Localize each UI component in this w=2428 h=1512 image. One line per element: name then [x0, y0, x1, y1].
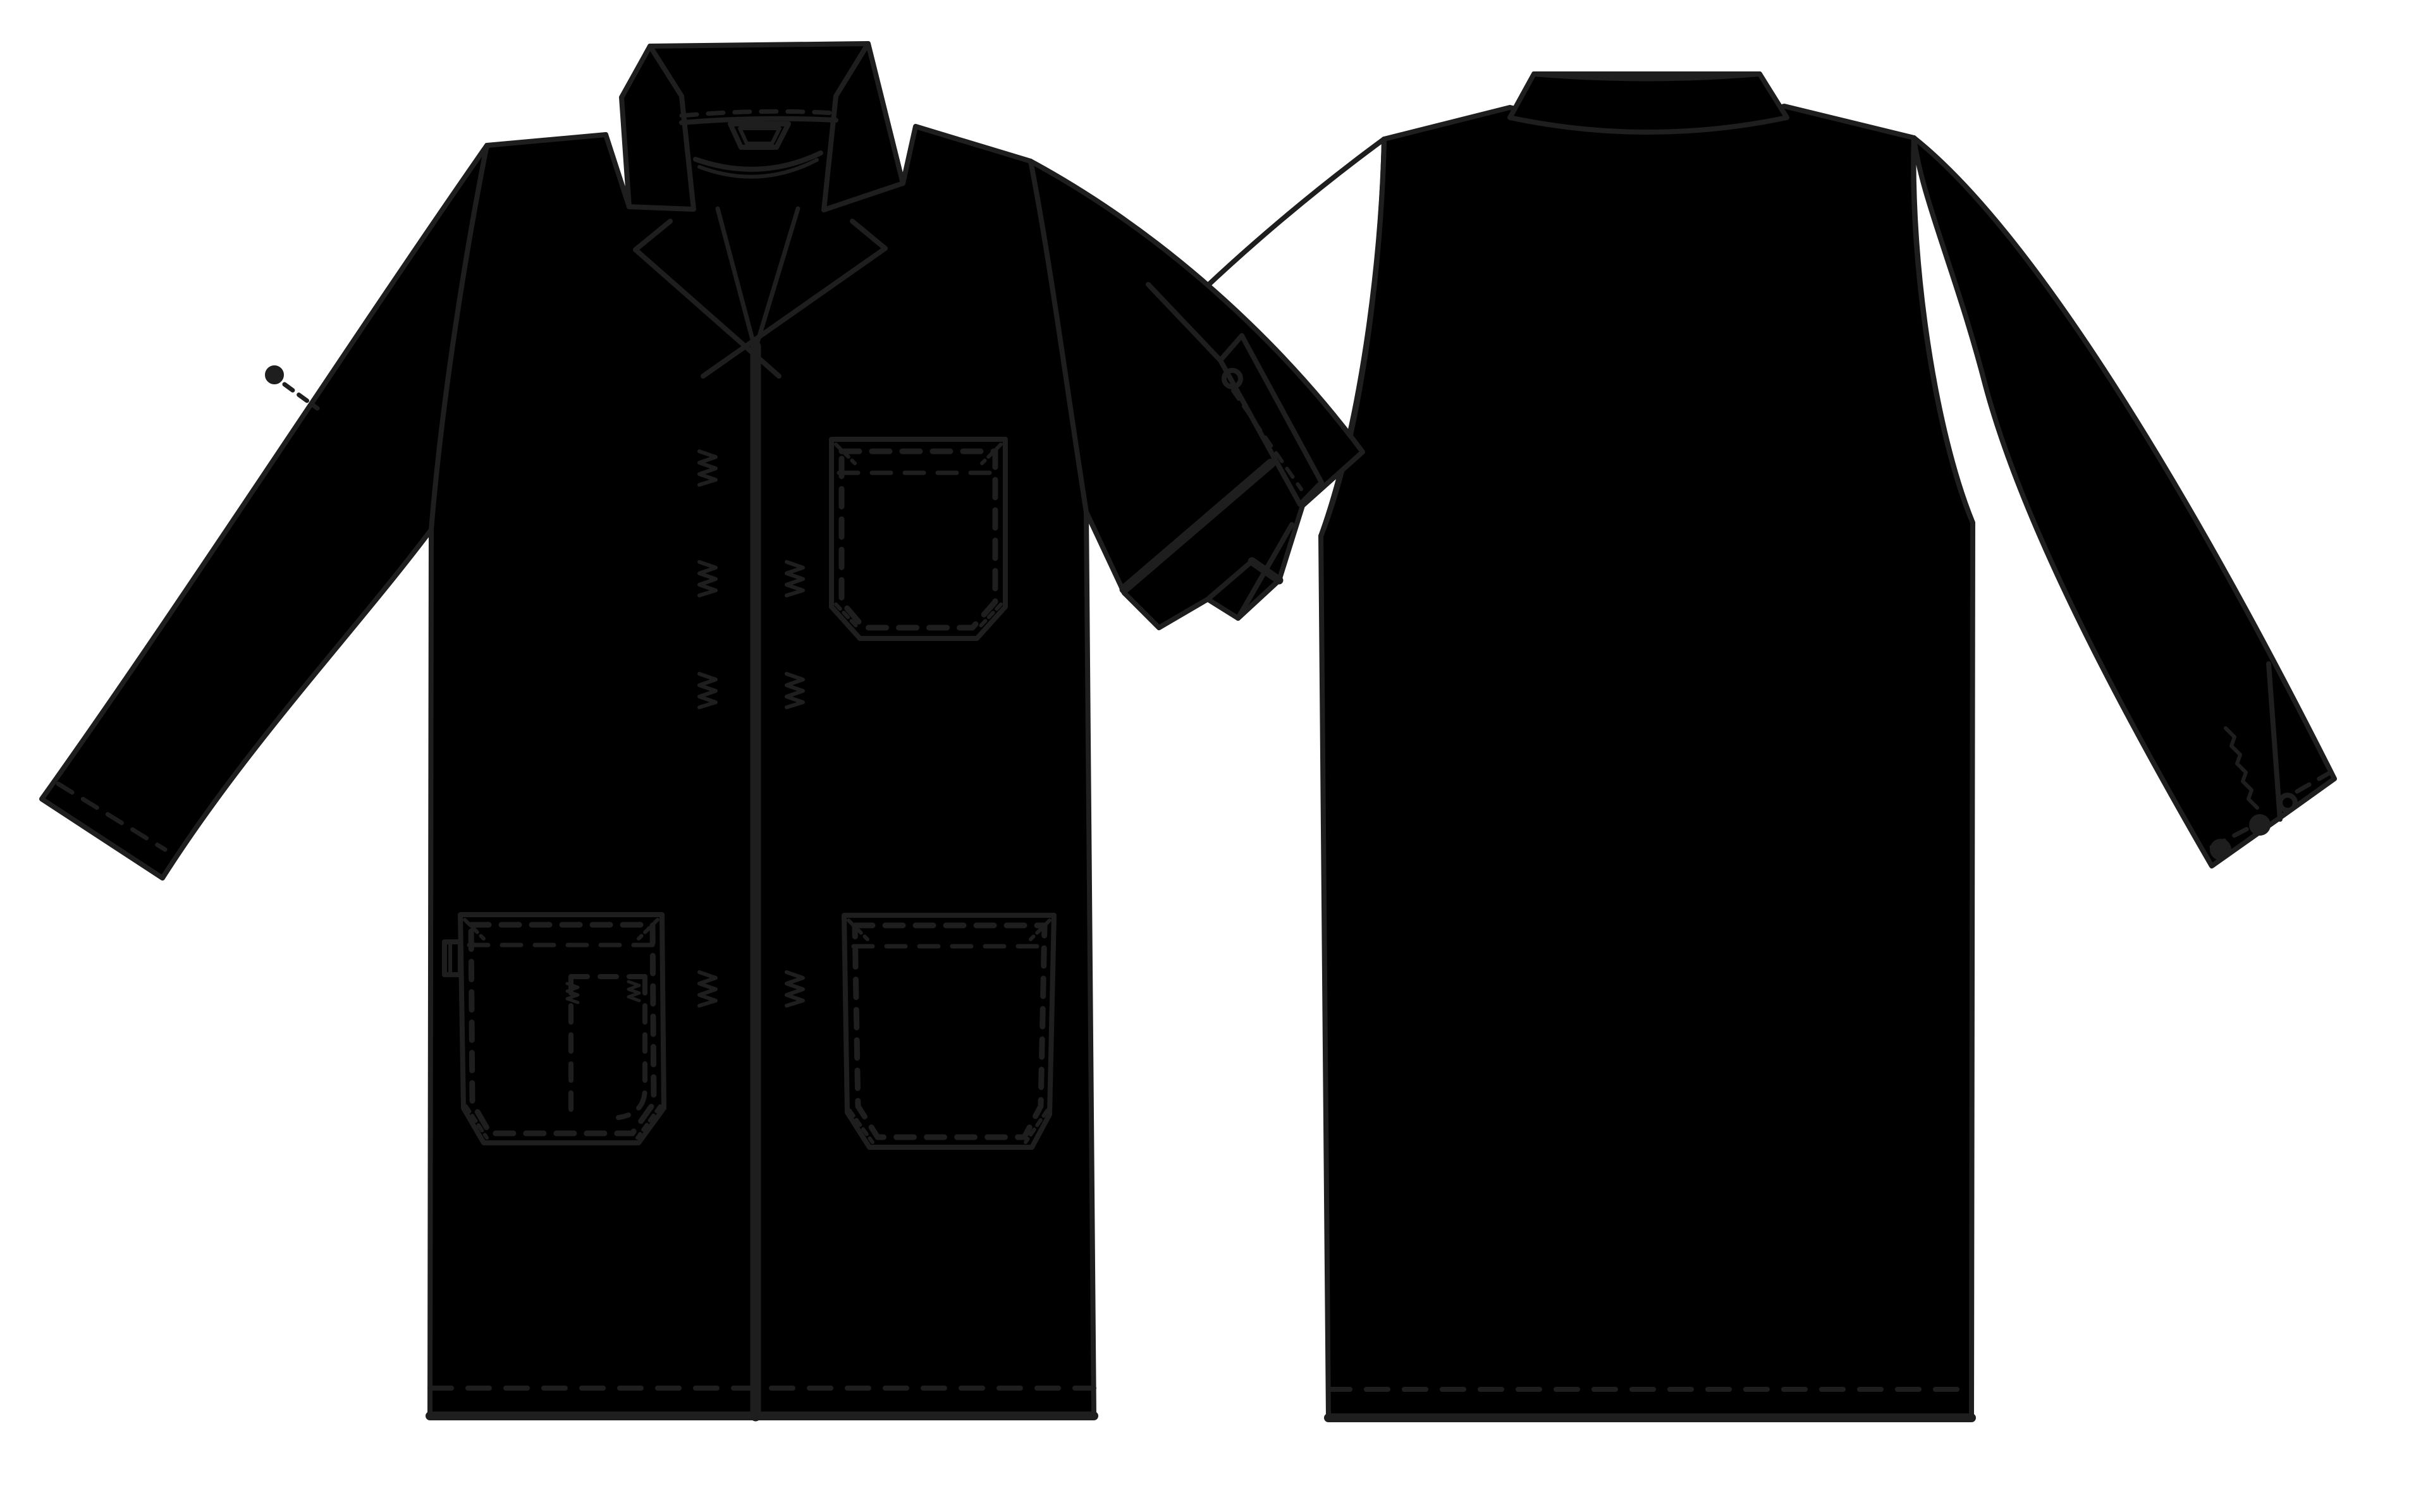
sketch-stage [0, 0, 2428, 1512]
hip-pocket-left [445, 915, 664, 1143]
sleeve-roll-button-icon [267, 368, 281, 382]
hip-pocket-right-outline [844, 915, 1054, 1147]
lab-coat-flat-sketch [0, 0, 2428, 1512]
pocket-side-tab [445, 942, 460, 975]
cuff-button-icon [2252, 817, 2268, 833]
chest-pocket [831, 439, 1005, 638]
hip-pocket-left-outline [460, 915, 664, 1143]
hip-pocket-right [844, 915, 1054, 1147]
chest-pocket-outline [831, 439, 1005, 638]
back-collar-band [1510, 74, 1787, 132]
paper-background [0, 0, 2428, 1512]
collar-panel-left-bottom [629, 207, 694, 209]
back-body [1321, 106, 1973, 1418]
cuff-button-icon [2212, 841, 2229, 858]
